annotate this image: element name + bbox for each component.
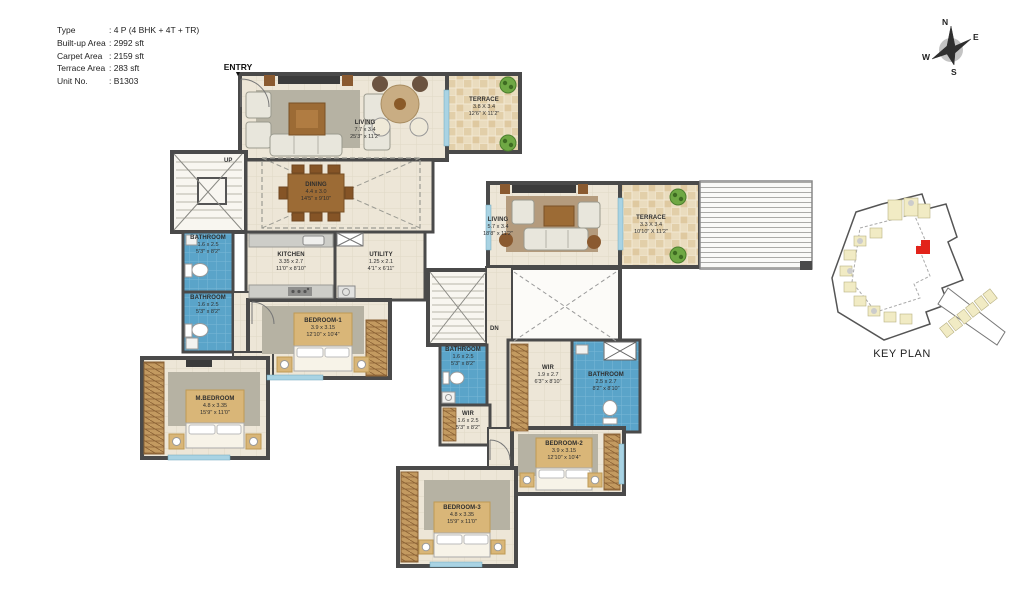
info-label: Carpet Area [57,50,109,63]
room-name: BEDROOM-3 [427,505,497,512]
info-label: Built-up Area [57,37,109,50]
room-label-bedroom-3: BEDROOM-3 4.8 x 3.35 15'9" x 11'0" [427,505,497,526]
plan-graphics [0,0,1024,591]
room-dim-ft: 5'3" x 8'2" [428,361,498,368]
tv-unit [500,184,588,194]
wall-stub [800,261,812,270]
room-name: TERRACE [449,97,519,104]
wardrobe [144,362,164,454]
room-name: LIVING [463,217,533,224]
stair-down-label: DN [490,326,499,332]
sink-icon [303,236,324,245]
window [168,455,230,460]
room-dim-m: 1.6 x 2.5 [433,418,503,425]
room-dim-m: 1.25 x 2.1 [346,259,416,266]
info-label: Unit No. [57,75,109,88]
room-dim-m: 3.8 X 3.4 [449,104,519,111]
room-name: DINING [281,182,351,189]
info-value: : 2159 sft [109,50,144,63]
compass-east-label: E [973,32,979,42]
room-dim-ft: 8'2" x 8'10" [571,386,641,393]
room-dim-ft: 14'5" x 9'10" [281,196,351,203]
room-dim-ft: 12'10" x 10'4" [529,455,599,462]
info-row: Built-up Area: 2992 sft [57,37,199,50]
room-dim-m: 4.4 x 3.0 [281,189,351,196]
compass-star-icon [932,26,971,65]
room-label-wir-2: WIR 1.6 x 2.5 5'3" x 8'2" [433,411,503,432]
room-dim-ft: 5'3" x 8'2" [433,425,503,432]
room-label-dining: DINING 4.4 x 3.0 14'5" x 9'10" [281,182,351,203]
room-dim-ft: 12'6" X 11'2" [449,111,519,118]
toilet-icon [603,401,617,416]
info-row: Terrace Area: 283 sft [57,62,199,75]
info-row: Carpet Area: 2159 sft [57,50,199,63]
info-value: : 4 P (4 BHK + 4T + TR) [109,24,199,37]
room-dim-m: 4.8 x 3.35 [427,512,497,519]
compass-rose [932,26,971,65]
room-dim-ft: 15'9" x 11'0" [180,410,250,417]
room-name: UTILITY [346,252,416,259]
room-name: WIR [433,411,503,418]
room-dim-m: 3.9 x 3.15 [288,325,358,332]
room-name: KITCHEN [256,252,326,259]
wardrobe [604,434,620,490]
room-dim-ft: 11'0" x 8'10" [256,266,326,273]
room-dim-ft: 25'3" x 11'2" [330,134,400,141]
wardrobe [511,344,528,431]
pergola-deck [700,181,812,269]
room-label-kitchen: KITCHEN 3.35 x 2.7 11'0" x 8'10" [256,252,326,273]
room-dim-m: 1.6 x 2.5 [173,302,243,309]
room-dim-ft: 18'8" x 11'2" [463,231,533,238]
room-dim-ft: 5'3" x 8'2" [173,309,243,316]
compass-west-label: W [922,52,930,62]
room-name: TERRACE [616,215,686,222]
info-value: : 2992 sft [109,37,144,50]
room-name: BATHROOM [173,235,243,242]
room-dim-ft: 12'10" x 10'4" [288,332,358,339]
room-dim-m: 3.3 X 3.4 [616,222,686,229]
basin-icon [576,345,588,354]
compass-north-label: N [942,17,948,27]
info-value: : B1303 [109,75,138,88]
room-dim-m: 7.7 x 3.4 [330,127,400,134]
key-plan-title: KEY PLAN [860,348,944,360]
key-plan-map [832,194,1005,345]
room-name: LIVING [330,120,400,127]
room-name: BATHROOM [173,295,243,302]
room-label-bathroom-3: BATHROOM 1.6 x 2.5 5'3" x 8'2" [428,347,498,368]
room-label-bedroom-1: BEDROOM-1 3.9 x 3.15 12'10" x 10'4" [288,318,358,339]
room-name: BEDROOM-1 [288,318,358,325]
room-dim-m: 4.8 x 3.35 [180,403,250,410]
room-name: BEDROOM-2 [529,441,599,448]
info-value: : 283 sft [109,62,139,75]
room-dim-ft: 4'1" x 6'11" [346,266,416,273]
window [267,375,323,380]
entry-marker: ENTRY ▼ [216,62,260,78]
window [430,562,482,567]
room-name: BATHROOM [571,372,641,379]
info-row: Type: 4 P (4 BHK + 4T + TR) [57,24,199,37]
floorplan-sheet: Type: 4 P (4 BHK + 4T + TR) Built-up Are… [0,0,1024,591]
room-label-utility: UTILITY 1.25 x 2.1 4'1" x 6'11" [346,252,416,273]
room-label-bathroom-1: BATHROOM 1.6 x 2.5 5'3" x 8'2" [173,235,243,256]
room-dim-m: 5.7 x 3.4 [463,224,533,231]
room-dim-m: 3.9 x 3.15 [529,448,599,455]
stair-up-label: UP [224,158,232,164]
room-label-terrace-2: TERRACE 3.3 X 3.4 10'10" X 11'2" [616,215,686,236]
room-label-bathroom-4: BATHROOM 2.5 x 2.7 8'2" x 8'10" [571,372,641,393]
room-dim-m: 1.6 x 2.5 [428,354,498,361]
room-label-bathroom-2: BATHROOM 1.6 x 2.5 5'3" x 8'2" [173,295,243,316]
coffee-table [289,103,325,135]
room-dim-m: 1.6 x 2.5 [173,242,243,249]
tv-unit [186,360,212,367]
compass-south-label: S [951,67,957,77]
wardrobe [401,472,418,562]
washing-machine-icon [338,286,355,298]
room-dim-ft: 15'9" x 11'0" [427,519,497,526]
room-label-master-bedroom: M.BEDROOM 4.8 x 3.35 15'9" x 11'0" [180,396,250,417]
void-open-below [510,268,620,345]
room-dim-ft: 10'10" X 11'2" [616,229,686,236]
room-label-living-2: LIVING 5.7 x 3.4 18'8" x 11'2" [463,217,533,238]
room-dim-m: 3.35 x 2.7 [256,259,326,266]
room-label-terrace-1: TERRACE 3.8 X 3.4 12'6" X 11'2" [449,97,519,118]
info-row: Unit No.: B1303 [57,75,199,88]
room-label-bedroom-2: BEDROOM-2 3.9 x 3.15 12'10" x 10'4" [529,441,599,462]
entry-arrow-icon: ▼ [216,72,260,78]
room-label-living-1: LIVING 7.7 x 3.4 25'3" x 11'2" [330,120,400,141]
unit-info-block: Type: 4 P (4 BHK + 4T + TR) Built-up Are… [57,24,199,88]
room-dim-m: 2.5 x 2.7 [571,379,641,386]
window [619,444,624,484]
info-label: Terrace Area [57,62,109,75]
room-name: M.BEDROOM [180,396,250,403]
room-name: BATHROOM [428,347,498,354]
room-dim-ft: 5'3" x 8'2" [173,249,243,256]
info-label: Type [57,24,109,37]
